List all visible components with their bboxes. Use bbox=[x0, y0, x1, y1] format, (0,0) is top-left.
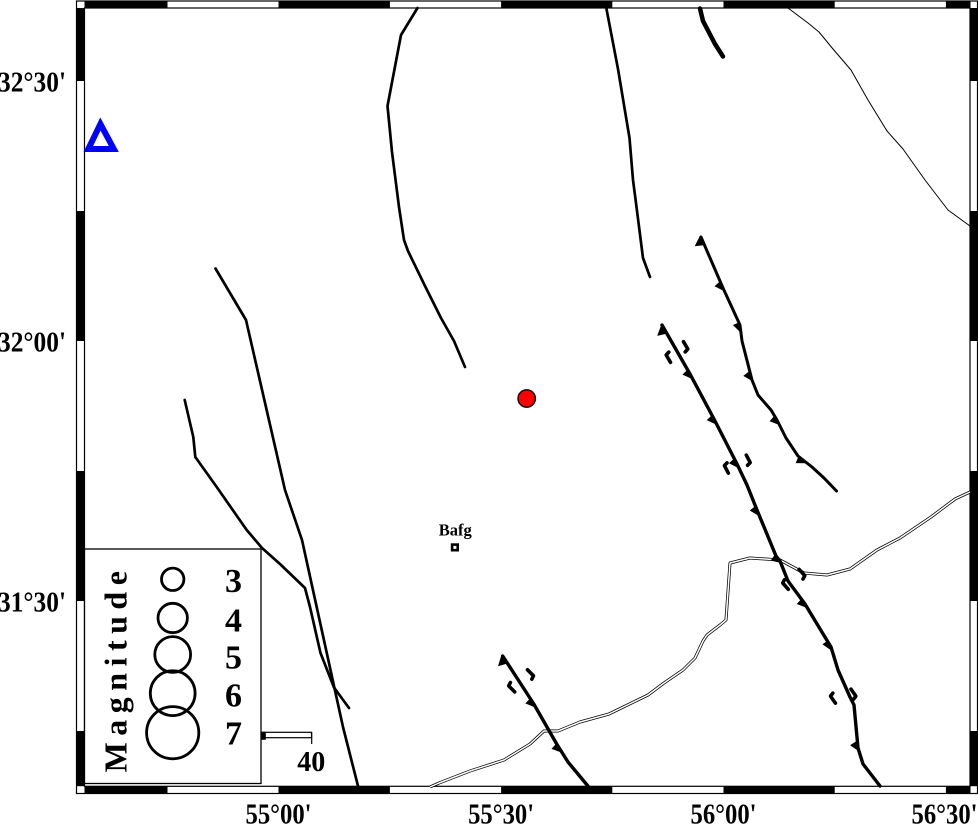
svg-text:56°30': 56°30' bbox=[912, 799, 978, 826]
svg-text:31°30': 31°30' bbox=[0, 587, 66, 619]
svg-text:3: 3 bbox=[225, 563, 242, 600]
svg-text:7: 7 bbox=[225, 716, 242, 753]
svg-text:Magnitude: Magnitude bbox=[98, 565, 134, 773]
svg-text:55°30': 55°30' bbox=[468, 799, 534, 826]
svg-text:40: 40 bbox=[297, 747, 325, 778]
svg-text:4: 4 bbox=[225, 602, 242, 639]
svg-text:32°30': 32°30' bbox=[0, 67, 66, 99]
svg-text:55°00': 55°00' bbox=[246, 799, 312, 826]
svg-text:56°00': 56°00' bbox=[691, 799, 757, 826]
svg-text:32°00': 32°00' bbox=[0, 327, 66, 359]
svg-text:6: 6 bbox=[225, 678, 242, 715]
svg-text:Bafg: Bafg bbox=[439, 521, 473, 540]
svg-text:5: 5 bbox=[225, 639, 242, 676]
